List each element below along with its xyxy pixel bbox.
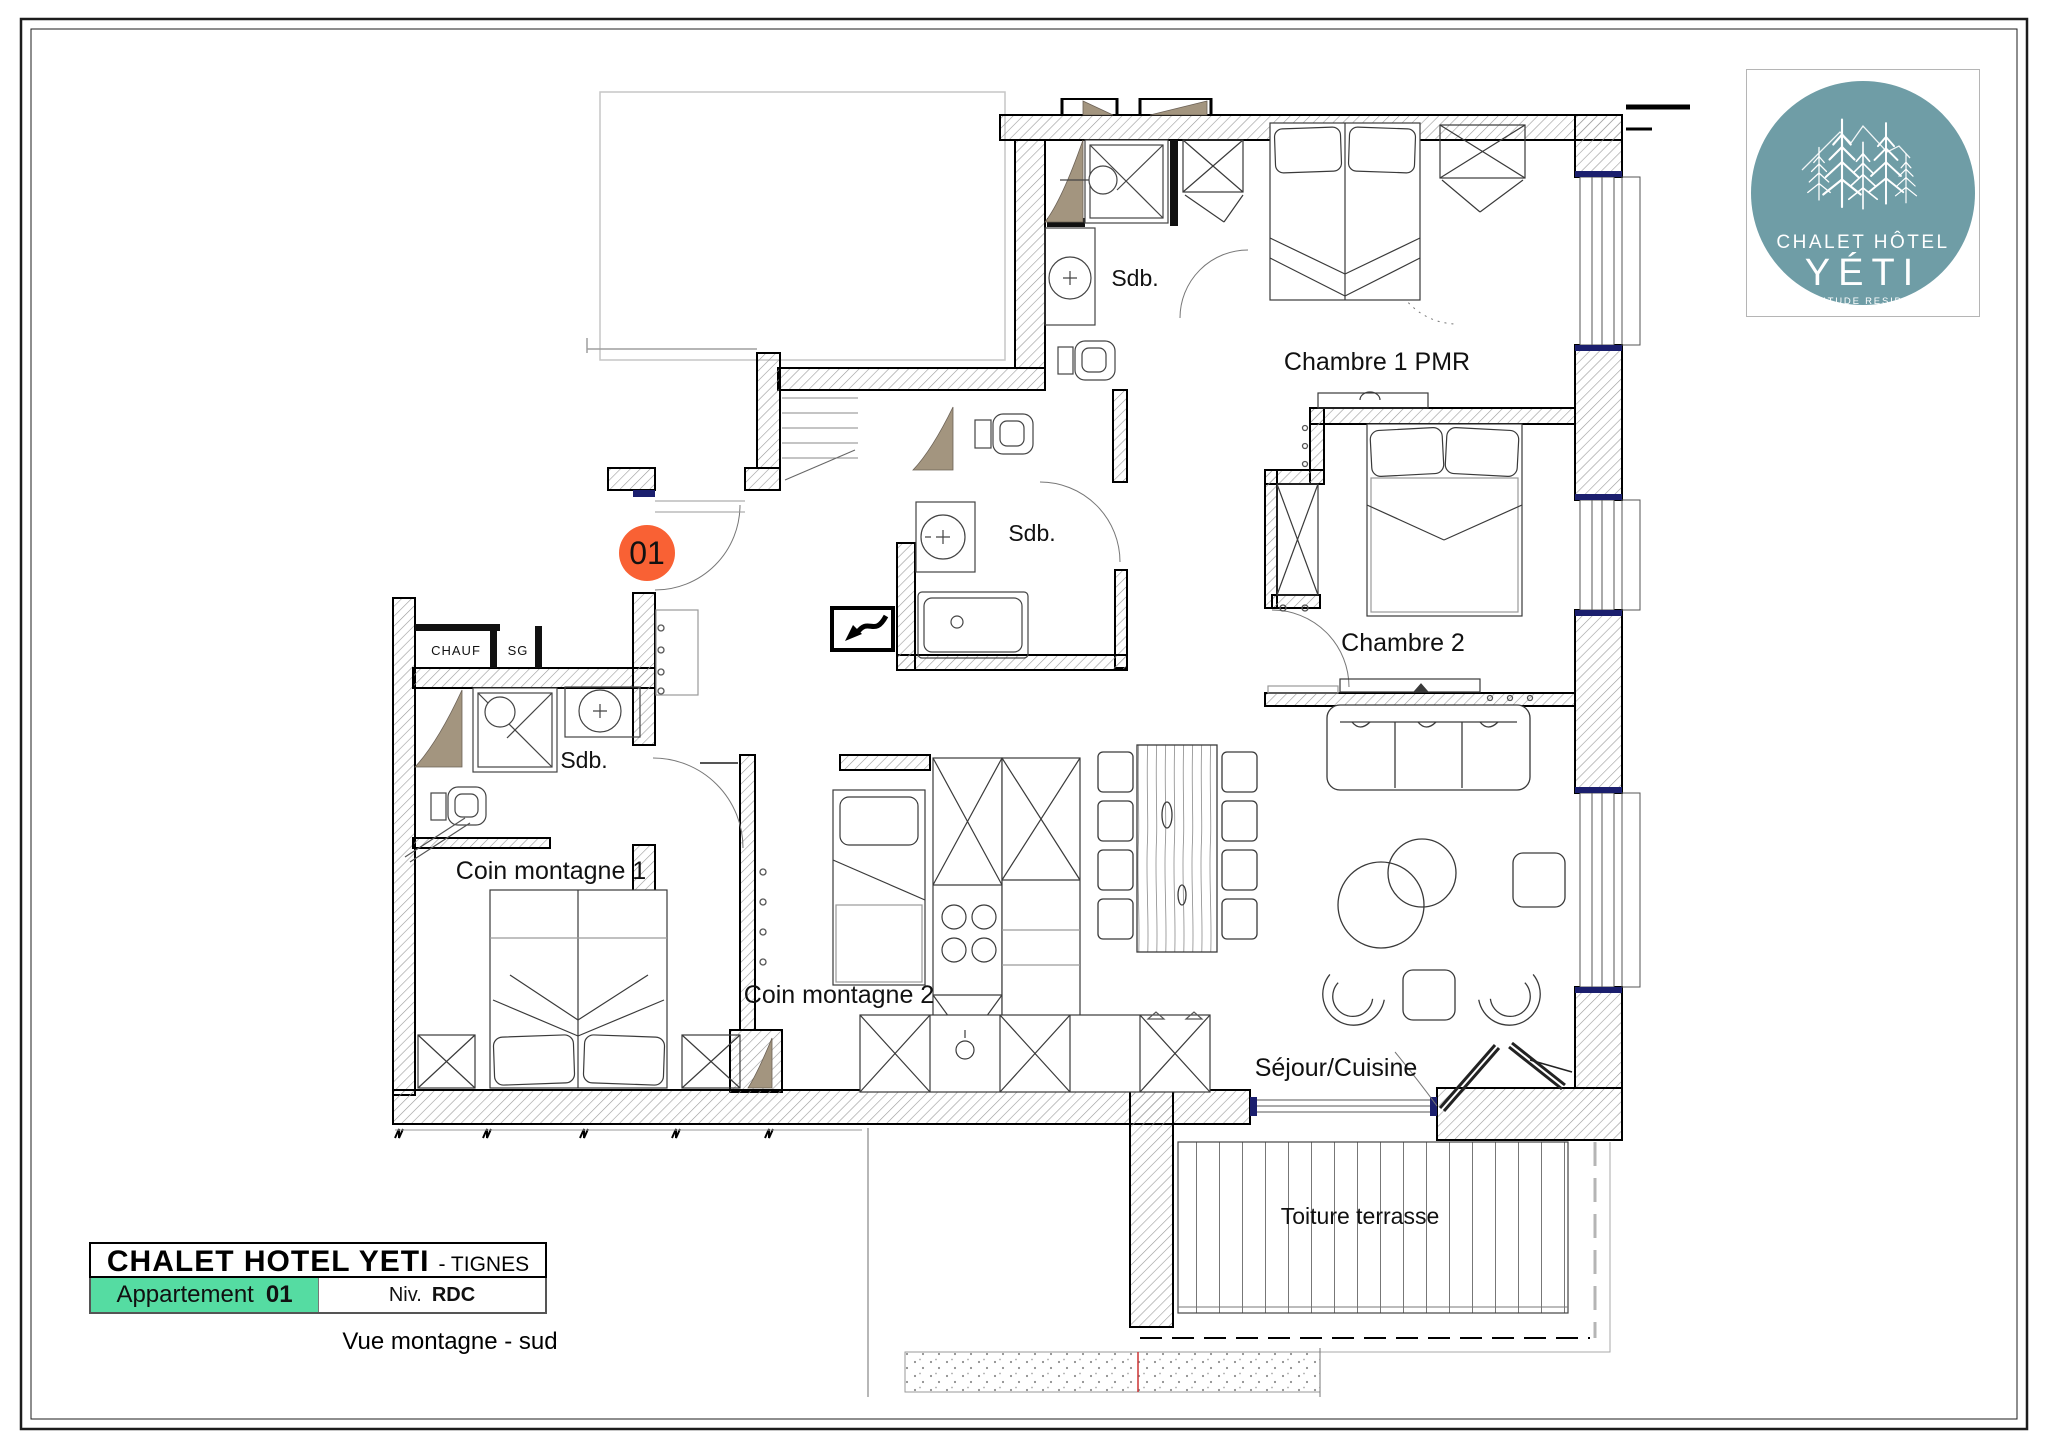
label-coin2: Coin montagne 2 xyxy=(744,981,934,1009)
post-ticks xyxy=(395,1129,862,1138)
windows xyxy=(633,107,1690,1116)
logo: CHALET HÔTEL YÉTI BY ALTITUDE RESIDENCES xyxy=(1747,70,1979,316)
armchair-right xyxy=(1478,974,1551,1035)
label-terrasse: Toiture terrasse xyxy=(1281,1203,1440,1229)
living-furniture xyxy=(1098,705,1565,1035)
label-coin1: Coin montagne 1 xyxy=(456,857,646,885)
title-row: CHALET HOTEL YETI - TIGNES xyxy=(89,1242,547,1278)
logo-line1: CHALET HÔTEL xyxy=(1776,231,1949,253)
title-row2: Appartement 01 Niv. RDC xyxy=(89,1278,547,1314)
stairs xyxy=(782,398,858,480)
drawing-sheet: Sdb. Chambre 1 PMR Sdb. Chambre 2 CHAUF … xyxy=(0,0,2048,1447)
armchair-left xyxy=(1313,974,1386,1035)
level-label: Niv. xyxy=(389,1284,422,1307)
label-sdb-left: Sdb. xyxy=(560,747,607,773)
label-sejour: Séjour/Cuisine xyxy=(1255,1054,1418,1082)
level-value: RDC xyxy=(432,1284,475,1307)
label-chambre1: Chambre 1 PMR xyxy=(1284,348,1470,376)
floor-plan-canvas: Sdb. Chambre 1 PMR Sdb. Chambre 2 CHAUF … xyxy=(0,0,2048,1447)
project-title: CHALET HOTEL YETI xyxy=(107,1246,430,1278)
label-sdb-top: Sdb. xyxy=(1111,265,1158,291)
project-location: - TIGNES xyxy=(438,1253,529,1277)
unit-badge-number: 01 xyxy=(629,535,665,571)
label-chambre2: Chambre 2 xyxy=(1341,629,1465,657)
logo-line2: YÉTI xyxy=(1805,251,1921,294)
label-sdb-mid: Sdb. xyxy=(1008,520,1055,546)
logo-box: CHALET HÔTEL YÉTI BY ALTITUDE RESIDENCES xyxy=(1746,69,1980,317)
apartment-label: Appartement xyxy=(116,1281,253,1309)
bathroom-fixtures xyxy=(431,140,1168,825)
apartment-cell: Appartement 01 xyxy=(91,1278,319,1312)
view-caption: Vue montagne - sud xyxy=(270,1328,630,1356)
label-chauf: CHAUF xyxy=(431,643,481,658)
level-cell: Niv. RDC xyxy=(319,1278,545,1312)
logo-line3: BY ALTITUDE RESIDENCES xyxy=(1781,296,1945,307)
terrace xyxy=(905,1142,1610,1397)
title-block: CHALET HOTEL YETI - TIGNES Appartement 0… xyxy=(89,1242,547,1314)
section-marks xyxy=(1626,107,1690,129)
label-sg: SG xyxy=(508,643,529,658)
unit-badge: 01 xyxy=(619,525,675,581)
apartment-number: 01 xyxy=(266,1281,293,1309)
technical-shaft xyxy=(832,608,893,650)
